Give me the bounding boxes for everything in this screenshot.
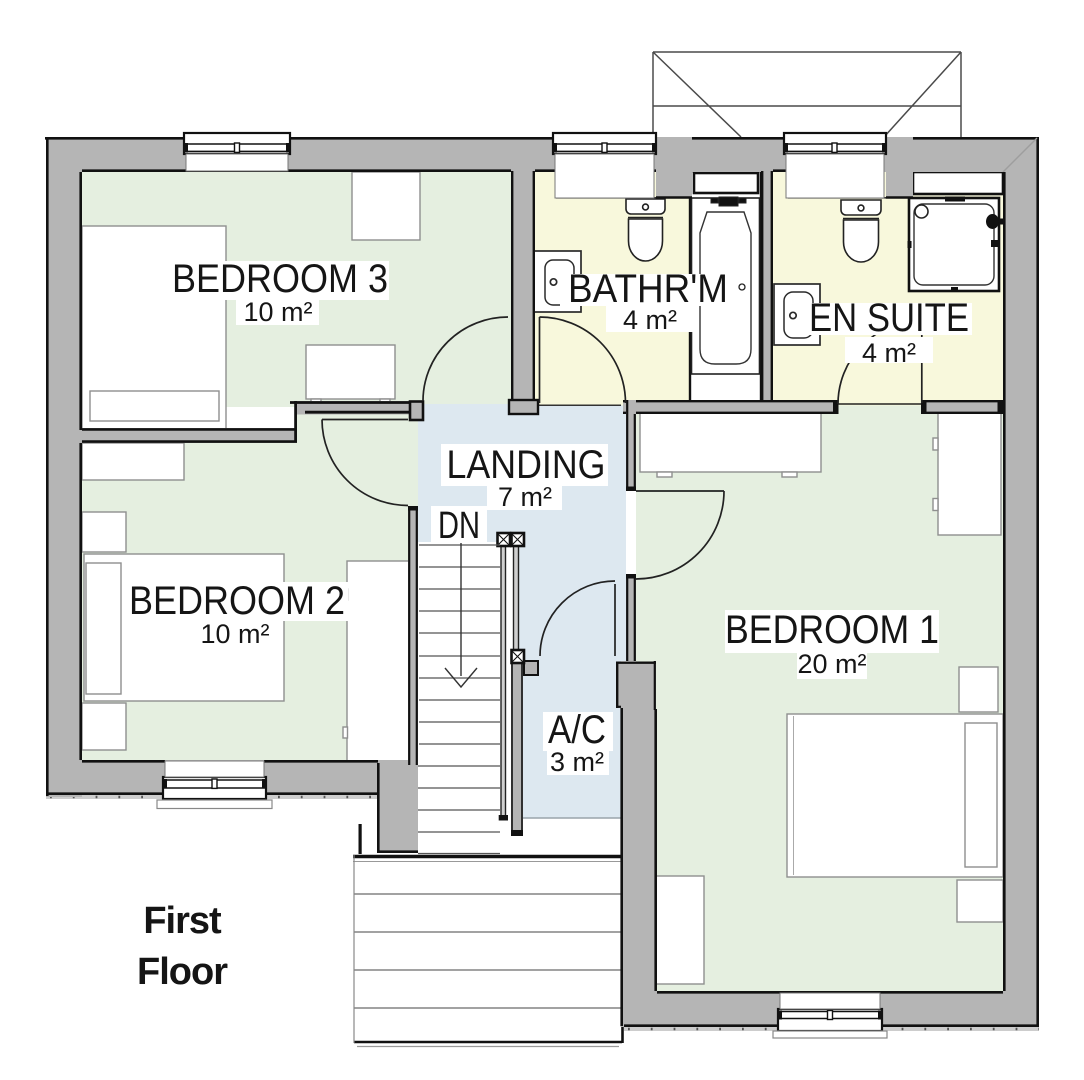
svg-text:10 m²: 10 m² [200,619,269,649]
svg-text:LANDING: LANDING [447,443,606,487]
svg-text:10 m²: 10 m² [243,297,312,327]
svg-text:7 m²: 7 m² [498,482,552,512]
svg-text:BEDROOM 3: BEDROOM 3 [172,257,388,301]
svg-text:BEDROOM 2: BEDROOM 2 [129,579,345,623]
svg-text:4 m²: 4 m² [862,338,916,368]
svg-text:20 m²: 20 m² [797,649,866,679]
svg-text:BEDROOM 1: BEDROOM 1 [725,608,939,652]
svg-text:DN: DN [438,505,480,547]
svg-text:EN SUITE: EN SUITE [809,296,969,340]
svg-text:Floor: Floor [137,951,228,993]
svg-text:4 m²: 4 m² [623,305,677,335]
svg-text:3 m²: 3 m² [550,747,604,777]
svg-text:A/C: A/C [548,708,606,752]
svg-text:First: First [143,900,222,942]
